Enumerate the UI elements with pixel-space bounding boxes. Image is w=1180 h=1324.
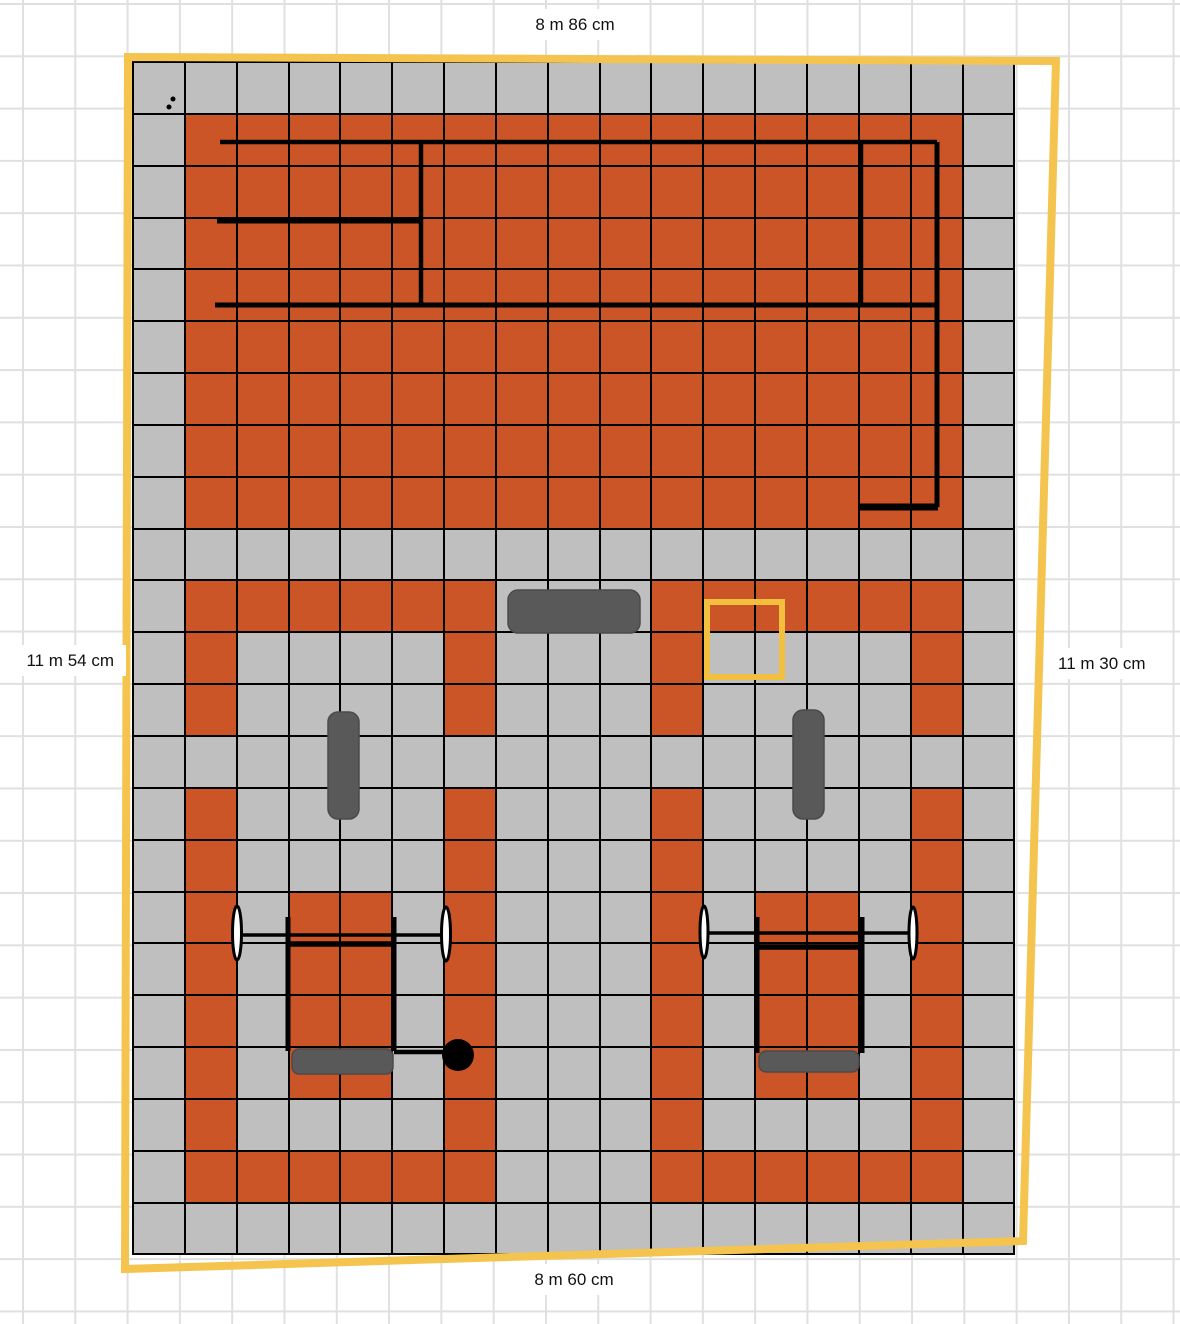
tile-gray <box>393 1204 443 1254</box>
tile-gray <box>290 633 340 683</box>
tile-orange <box>652 219 702 269</box>
tile-gray <box>756 841 806 891</box>
tile-orange <box>652 426 702 476</box>
tile-orange <box>290 167 340 217</box>
tile-gray <box>290 841 340 891</box>
tile-orange <box>860 426 910 476</box>
tile-orange <box>808 115 858 165</box>
tile-orange <box>497 115 547 165</box>
tile-orange <box>652 944 702 994</box>
tile-orange <box>756 1152 806 1202</box>
tile-gray <box>497 841 547 891</box>
tile-gray <box>964 322 1014 372</box>
tile-gray <box>964 1048 1014 1098</box>
tile-gray <box>860 633 910 683</box>
tile-orange <box>601 374 651 424</box>
tile-gray <box>134 633 184 683</box>
tile-orange <box>445 426 495 476</box>
tile-gray <box>134 374 184 424</box>
tile-orange <box>912 1152 962 1202</box>
tile-orange <box>238 374 288 424</box>
tile-gray <box>601 789 651 839</box>
tile-orange <box>341 322 391 372</box>
tile-gray <box>601 633 651 683</box>
tile-orange <box>912 322 962 372</box>
design-canvas[interactable]: 8 m 86 cm 8 m 60 cm 11 m 54 cm 11 m 30 c… <box>0 0 1180 1324</box>
tile-gray <box>549 893 599 943</box>
tile-orange <box>290 426 340 476</box>
tile-gray <box>497 530 547 580</box>
tile-orange <box>445 944 495 994</box>
tile-gray <box>134 115 184 165</box>
tile-orange <box>652 633 702 683</box>
tile-gray <box>341 633 391 683</box>
tile-orange <box>341 167 391 217</box>
tile-orange <box>186 685 236 735</box>
tile-gray <box>860 685 910 735</box>
tile-gray <box>808 789 858 839</box>
tile-orange <box>290 219 340 269</box>
tile-gray <box>134 581 184 631</box>
tile-gray <box>238 996 288 1046</box>
tile-orange <box>186 322 236 372</box>
tile-orange <box>186 996 236 1046</box>
tile-gray <box>238 1100 288 1150</box>
tile-gray <box>964 841 1014 891</box>
tile-gray <box>964 530 1014 580</box>
tile-orange <box>549 167 599 217</box>
tile-gray <box>860 737 910 787</box>
tile-orange <box>912 581 962 631</box>
tile-gray <box>964 115 1014 165</box>
tile-gray <box>549 63 599 113</box>
tile-orange <box>652 893 702 943</box>
tile-orange <box>290 893 340 943</box>
tile-orange <box>652 167 702 217</box>
tile-orange <box>549 374 599 424</box>
tile-gray <box>393 737 443 787</box>
tile-orange <box>186 633 236 683</box>
tile-gray <box>704 789 754 839</box>
tile-gray <box>238 1204 288 1254</box>
tile-orange <box>341 944 391 994</box>
tile-orange <box>549 115 599 165</box>
tile-gray <box>393 63 443 113</box>
tile-orange <box>445 115 495 165</box>
tile-orange <box>912 789 962 839</box>
tile-gray <box>601 996 651 1046</box>
dimension-label-right[interactable]: 11 m 30 cm <box>1046 648 1158 679</box>
tile-orange <box>912 270 962 320</box>
tile-orange <box>341 1048 391 1098</box>
tile-orange <box>652 1152 702 1202</box>
tile-orange <box>186 1152 236 1202</box>
tile-gray <box>445 1204 495 1254</box>
tile-orange <box>912 478 962 528</box>
tile-gray <box>238 685 288 735</box>
tile-orange <box>445 322 495 372</box>
tile-gray <box>860 63 910 113</box>
tile-orange <box>341 374 391 424</box>
tile-gray <box>549 1152 599 1202</box>
tile-gray <box>134 530 184 580</box>
tile-orange <box>186 944 236 994</box>
tile-gray <box>756 633 806 683</box>
tile-orange <box>290 374 340 424</box>
tile-orange <box>290 270 340 320</box>
tile-gray <box>860 893 910 943</box>
tile-gray <box>704 996 754 1046</box>
tile-gray <box>704 530 754 580</box>
tile-gray <box>756 737 806 787</box>
tile-gray <box>704 737 754 787</box>
tile-orange <box>860 167 910 217</box>
tile-gray <box>238 737 288 787</box>
tile-gray <box>601 737 651 787</box>
tile-gray <box>808 685 858 735</box>
tile-gray <box>134 322 184 372</box>
tile-orange <box>290 1152 340 1202</box>
tile-orange <box>238 426 288 476</box>
tile-orange <box>808 219 858 269</box>
tile-gray <box>134 1048 184 1098</box>
tile-gray <box>134 167 184 217</box>
tile-orange <box>341 893 391 943</box>
tile-gray <box>341 1100 391 1150</box>
tile-orange <box>186 426 236 476</box>
tile-orange <box>860 219 910 269</box>
tile-orange <box>445 219 495 269</box>
tile-gray <box>134 841 184 891</box>
tile-orange <box>393 219 443 269</box>
tile-gray <box>601 1048 651 1098</box>
tile-gray <box>238 841 288 891</box>
tile-orange <box>756 374 806 424</box>
tile-gray <box>549 633 599 683</box>
tile-orange <box>860 270 910 320</box>
tile-gray <box>549 1048 599 1098</box>
tile-orange <box>756 1048 806 1098</box>
tile-orange <box>756 478 806 528</box>
tile-gray <box>238 789 288 839</box>
tile-orange <box>497 219 547 269</box>
tile-orange <box>238 219 288 269</box>
tile-gray <box>549 530 599 580</box>
tile-orange <box>808 167 858 217</box>
tile-orange <box>912 996 962 1046</box>
tile-gray <box>341 1204 391 1254</box>
tile-gray <box>445 737 495 787</box>
tile-gray <box>134 737 184 787</box>
tile-orange <box>549 426 599 476</box>
tile-orange <box>912 374 962 424</box>
tile-orange <box>341 478 391 528</box>
tile-gray <box>497 633 547 683</box>
tile-gray <box>652 63 702 113</box>
tile-gray <box>601 1204 651 1254</box>
tile-gray <box>704 893 754 943</box>
tile-gray <box>964 1152 1014 1202</box>
tile-orange <box>290 115 340 165</box>
tile-gray <box>912 1204 962 1254</box>
tile-gray <box>601 685 651 735</box>
tile-orange <box>912 167 962 217</box>
tile-gray <box>601 530 651 580</box>
tile-orange <box>445 478 495 528</box>
tile-orange <box>704 322 754 372</box>
floor-tile-grid[interactable] <box>132 61 1015 1255</box>
tile-gray <box>808 530 858 580</box>
tile-orange <box>341 581 391 631</box>
tile-orange <box>756 219 806 269</box>
tile-gray <box>652 530 702 580</box>
tile-gray <box>704 63 754 113</box>
tile-orange <box>808 893 858 943</box>
tile-orange <box>652 270 702 320</box>
tile-orange <box>186 841 236 891</box>
tile-orange <box>601 478 651 528</box>
tile-gray <box>704 685 754 735</box>
tile-gray <box>964 996 1014 1046</box>
tile-orange <box>860 1152 910 1202</box>
tile-orange <box>186 1048 236 1098</box>
tile-gray <box>756 1204 806 1254</box>
tile-orange <box>290 581 340 631</box>
tile-orange <box>186 374 236 424</box>
tile-orange <box>445 1100 495 1150</box>
tile-gray <box>549 789 599 839</box>
tile-orange <box>238 478 288 528</box>
tile-orange <box>808 426 858 476</box>
tile-gray <box>134 996 184 1046</box>
tile-orange <box>860 322 910 372</box>
tile-orange <box>186 478 236 528</box>
tile-orange <box>341 270 391 320</box>
tile-orange <box>238 270 288 320</box>
tile-orange <box>912 1048 962 1098</box>
tile-orange <box>912 893 962 943</box>
tile-orange <box>912 426 962 476</box>
tile-orange <box>912 685 962 735</box>
tile-orange <box>445 374 495 424</box>
tile-gray <box>808 737 858 787</box>
tile-gray <box>704 944 754 994</box>
tile-gray <box>964 219 1014 269</box>
tile-orange <box>652 841 702 891</box>
tile-gray <box>704 1048 754 1098</box>
tile-gray <box>964 581 1014 631</box>
tile-orange <box>393 478 443 528</box>
tile-gray <box>964 893 1014 943</box>
tile-orange <box>652 115 702 165</box>
tile-orange <box>497 374 547 424</box>
tile-orange <box>341 219 391 269</box>
tile-gray <box>860 1048 910 1098</box>
tile-gray <box>497 1100 547 1150</box>
tile-gray <box>238 63 288 113</box>
tile-gray <box>912 63 962 113</box>
tile-gray <box>756 530 806 580</box>
tile-orange <box>290 944 340 994</box>
tile-gray <box>497 944 547 994</box>
tile-orange <box>445 270 495 320</box>
tile-orange <box>238 322 288 372</box>
tile-orange <box>912 633 962 683</box>
tile-gray <box>445 63 495 113</box>
tile-gray <box>497 996 547 1046</box>
tile-orange <box>393 374 443 424</box>
tile-gray <box>134 478 184 528</box>
tile-gray <box>549 737 599 787</box>
tile-gray <box>860 944 910 994</box>
tile-orange <box>445 996 495 1046</box>
tile-orange <box>497 167 547 217</box>
tile-orange <box>497 270 547 320</box>
tile-gray <box>964 270 1014 320</box>
tile-gray <box>549 581 599 631</box>
tile-gray <box>393 789 443 839</box>
tile-gray <box>912 530 962 580</box>
tile-gray <box>497 685 547 735</box>
tile-orange <box>756 167 806 217</box>
tile-gray <box>134 1100 184 1150</box>
tile-orange <box>652 322 702 372</box>
tile-orange <box>445 167 495 217</box>
tile-orange <box>808 581 858 631</box>
tile-orange <box>808 270 858 320</box>
tile-gray <box>497 893 547 943</box>
tile-gray <box>964 426 1014 476</box>
tile-orange <box>186 581 236 631</box>
tile-orange <box>186 115 236 165</box>
tile-gray <box>549 1100 599 1150</box>
tile-gray <box>134 63 184 113</box>
tile-orange <box>860 581 910 631</box>
tile-gray <box>393 944 443 994</box>
tile-gray <box>186 1204 236 1254</box>
tile-orange <box>704 478 754 528</box>
tile-orange <box>445 893 495 943</box>
tile-orange <box>497 478 547 528</box>
tile-orange <box>393 167 443 217</box>
tile-orange <box>601 115 651 165</box>
tile-orange <box>756 270 806 320</box>
tile-orange <box>186 167 236 217</box>
tile-orange <box>912 1100 962 1150</box>
tile-orange <box>341 426 391 476</box>
tile-orange <box>808 374 858 424</box>
tile-gray <box>601 63 651 113</box>
tile-orange <box>393 1152 443 1202</box>
tile-orange <box>756 322 806 372</box>
tile-orange <box>238 1152 288 1202</box>
tile-orange <box>652 789 702 839</box>
tile-orange <box>912 219 962 269</box>
tile-orange <box>393 322 443 372</box>
tile-gray <box>134 944 184 994</box>
tile-gray <box>601 944 651 994</box>
tile-gray <box>549 944 599 994</box>
tile-orange <box>290 1048 340 1098</box>
tile-orange <box>601 270 651 320</box>
tile-gray <box>964 167 1014 217</box>
tile-gray <box>964 789 1014 839</box>
tile-orange <box>186 1100 236 1150</box>
tile-orange <box>341 996 391 1046</box>
tile-orange <box>756 581 806 631</box>
tile-orange <box>652 685 702 735</box>
dimension-label-top[interactable]: 8 m 86 cm <box>523 9 626 40</box>
dimension-label-left[interactable]: 11 m 54 cm <box>14 645 126 676</box>
tile-orange <box>808 322 858 372</box>
tile-orange <box>601 167 651 217</box>
tile-gray <box>497 1204 547 1254</box>
tile-gray <box>964 944 1014 994</box>
tile-gray <box>341 737 391 787</box>
tile-orange <box>756 426 806 476</box>
tile-orange <box>808 996 858 1046</box>
tile-gray <box>860 1100 910 1150</box>
tile-orange <box>704 167 754 217</box>
tile-orange <box>549 270 599 320</box>
tile-gray <box>549 841 599 891</box>
tile-gray <box>964 478 1014 528</box>
tile-orange <box>238 581 288 631</box>
tile-orange <box>341 115 391 165</box>
tile-gray <box>134 789 184 839</box>
tile-gray <box>912 737 962 787</box>
tile-gray <box>238 893 288 943</box>
tile-gray <box>808 633 858 683</box>
tile-gray <box>134 685 184 735</box>
tile-gray <box>601 581 651 631</box>
tile-gray <box>341 685 391 735</box>
tile-gray <box>497 737 547 787</box>
tile-gray <box>497 63 547 113</box>
tile-gray <box>704 1204 754 1254</box>
tile-gray <box>134 1152 184 1202</box>
tile-gray <box>393 1048 443 1098</box>
tile-gray <box>393 530 443 580</box>
tile-orange <box>549 219 599 269</box>
tile-gray <box>601 1100 651 1150</box>
tile-orange <box>860 374 910 424</box>
tile-orange <box>290 322 340 372</box>
tile-gray <box>341 530 391 580</box>
tile-gray <box>756 789 806 839</box>
tile-orange <box>549 478 599 528</box>
tile-gray <box>497 581 547 631</box>
tile-gray <box>134 426 184 476</box>
tile-orange <box>808 1152 858 1202</box>
tile-gray <box>290 1100 340 1150</box>
tile-orange <box>393 581 443 631</box>
tile-gray <box>290 737 340 787</box>
tile-gray <box>964 1204 1014 1254</box>
tile-orange <box>652 581 702 631</box>
tile-gray <box>497 1048 547 1098</box>
tile-gray <box>393 1100 443 1150</box>
tile-orange <box>860 115 910 165</box>
tile-orange <box>238 115 288 165</box>
tile-gray <box>756 1100 806 1150</box>
dimension-label-bottom[interactable]: 8 m 60 cm <box>522 1264 625 1295</box>
tile-orange <box>238 167 288 217</box>
tile-gray <box>860 996 910 1046</box>
tile-orange <box>912 841 962 891</box>
tile-orange <box>756 944 806 994</box>
tile-orange <box>704 270 754 320</box>
